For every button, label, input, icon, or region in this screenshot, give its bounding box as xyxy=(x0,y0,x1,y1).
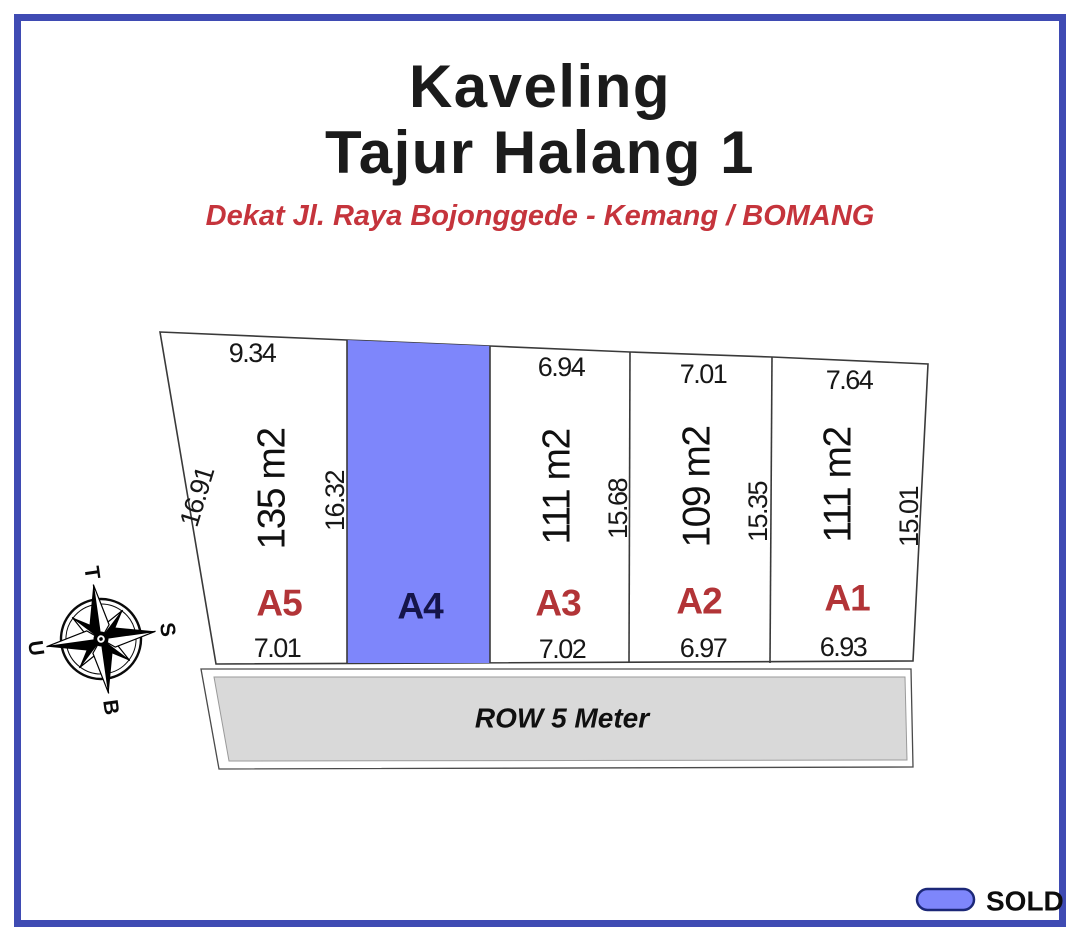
plot-a5-top-width: 9.34 xyxy=(229,338,277,368)
compass-south-label: S xyxy=(155,621,180,638)
plot-a1-label: A1 xyxy=(824,578,870,619)
plot-a5-right-side-length: 16.32 xyxy=(320,470,350,531)
plot-a3-area: 111 m2 xyxy=(536,429,579,544)
plot-a4-label: A4 xyxy=(397,586,444,627)
plot-a5-bottom-width: 7.01 xyxy=(254,633,301,663)
plot-a2-label: A2 xyxy=(676,581,722,622)
plot-a3-side-length: 15.68 xyxy=(603,478,633,539)
site-plan-drawing: ROW 5 Meter 9.34 6.94 7.01 7.64 16.91 16… xyxy=(0,0,1080,941)
plot-a1-bottom-width: 6.93 xyxy=(820,632,867,662)
plot-a1-side-length: 15.01 xyxy=(894,486,924,547)
road-label: ROW 5 Meter xyxy=(475,703,651,734)
compass-east-label: T xyxy=(79,565,104,581)
plot-a2-side-length: 15.35 xyxy=(743,481,773,542)
plot-a2-area: 109 m2 xyxy=(676,426,719,547)
plot-a1-top-width: 7.64 xyxy=(826,365,874,395)
plot-a5-label: A5 xyxy=(256,583,302,624)
legend-sold-swatch xyxy=(917,889,974,910)
plot-a2-top-width: 7.01 xyxy=(680,359,727,389)
plot-a5-area: 135 m2 xyxy=(251,428,294,549)
plot-a3-label: A3 xyxy=(535,583,581,624)
compass-north-label: U xyxy=(23,639,48,657)
compass-rose-icon: T S B U xyxy=(14,555,189,725)
plot-a2-bottom-width: 6.97 xyxy=(680,633,727,663)
plot-a3-bottom-width: 7.02 xyxy=(539,634,586,664)
compass-west-label: B xyxy=(98,698,123,716)
kaveling-site-plan-poster: Kaveling Tajur Halang 1 Dekat Jl. Raya B… xyxy=(0,0,1080,941)
plot-a3-top-width: 6.94 xyxy=(538,352,586,382)
legend: SOLD xyxy=(917,886,1064,917)
legend-sold-label: SOLD xyxy=(986,886,1064,917)
plot-a1-area: 111 m2 xyxy=(817,427,860,542)
